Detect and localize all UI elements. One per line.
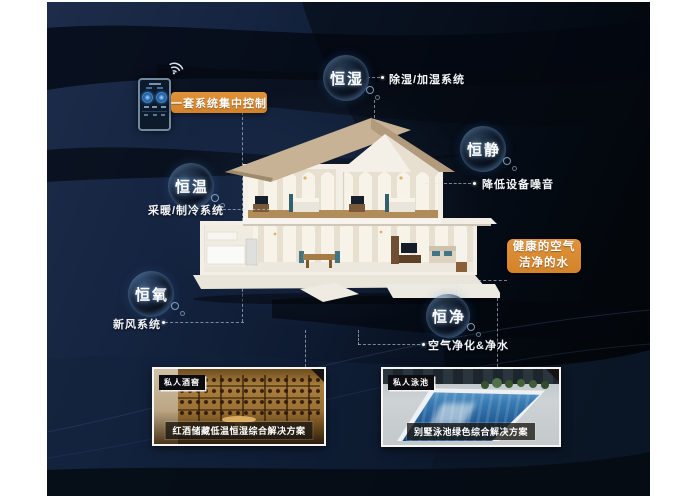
pool-card-caption: 别墅泳池绿色综合解决方案 — [407, 423, 535, 440]
connector-line — [358, 344, 420, 345]
bubble-humidity: 恒湿 — [323, 55, 369, 101]
pool-card: 私人泳池 别墅泳池绿色综合解决方案 — [381, 367, 561, 447]
pool-card-tag: 私人泳池 — [388, 375, 434, 390]
bubble-oxygen: 恒氧 — [128, 271, 174, 317]
connector-line — [165, 322, 244, 323]
card-corner-fold — [311, 369, 324, 382]
bubble-humidity-label: 恒湿 — [328, 68, 364, 89]
wine-cellar-card: 私人酒窖 红酒储藏低温恒湿综合解决方案 — [152, 367, 326, 446]
connector-line — [457, 280, 507, 281]
connector-dot — [381, 76, 384, 79]
connector-line — [456, 280, 457, 297]
phone-knob-right — [156, 92, 167, 103]
note-temperature: 采暖/制冷系统 — [148, 202, 224, 218]
connector-line — [425, 183, 471, 184]
bubble-clean: 恒净 — [426, 294, 470, 338]
note-humidity: 除湿/加湿系统 — [389, 71, 465, 87]
wine-cellar-photo: 私人酒窖 红酒储藏低温恒湿综合解决方案 — [154, 369, 324, 444]
pool-photo: 私人泳池 别墅泳池绿色综合解决方案 — [383, 369, 559, 445]
connector-line — [223, 209, 270, 210]
phone-divider — [142, 111, 167, 112]
phone-title-bar — [149, 83, 161, 85]
phone-knob-left — [142, 92, 153, 103]
phone-mockup — [138, 78, 171, 131]
bubble-clean-label: 恒净 — [430, 306, 466, 327]
pool-bushes — [517, 379, 525, 387]
bubble-quiet-label: 恒静 — [465, 139, 501, 160]
connector-dot — [473, 182, 476, 185]
infographic-page: 恒湿 除湿/加湿系统 恒静 降低设备噪音 恒温 采暖/制冷系统 恒氧 新风系统 … — [0, 0, 700, 497]
phone-footer-row — [140, 114, 169, 116]
note-clean: 空气净化&净水 — [428, 337, 509, 353]
bubble-quiet: 恒静 — [460, 126, 506, 172]
phone-knobs — [140, 92, 169, 103]
callout-central-control: 一套系统集中控制 — [171, 92, 267, 113]
connector-dot — [422, 343, 425, 346]
connector-line — [305, 330, 306, 367]
callout-health-line1: 健康的空气 — [513, 240, 576, 256]
phone-label-row — [140, 106, 169, 108]
note-oxygen: 新风系统 — [113, 316, 161, 332]
note-quiet: 降低设备噪音 — [482, 176, 554, 192]
background-panel: 恒湿 除湿/加湿系统 恒静 降低设备噪音 恒温 采暖/制冷系统 恒氧 新风系统 … — [47, 2, 650, 496]
connector-dot — [162, 321, 165, 324]
connector-line — [497, 298, 498, 367]
bubble-oxygen-label: 恒氧 — [133, 284, 169, 305]
card-corner-fold — [546, 369, 559, 382]
wine-card-caption: 红酒储藏低温恒湿综合解决方案 — [165, 422, 312, 439]
callout-health-line2: 洁净的水 — [519, 256, 569, 272]
house-illustration — [185, 112, 500, 304]
phone-status-row — [140, 87, 169, 89]
wine-card-tag: 私人酒窖 — [159, 375, 205, 390]
bubble-temperature-label: 恒温 — [173, 176, 209, 197]
callout-healthy-air-water: 健康的空气 洁净的水 — [507, 239, 581, 273]
connector-line — [358, 330, 359, 345]
